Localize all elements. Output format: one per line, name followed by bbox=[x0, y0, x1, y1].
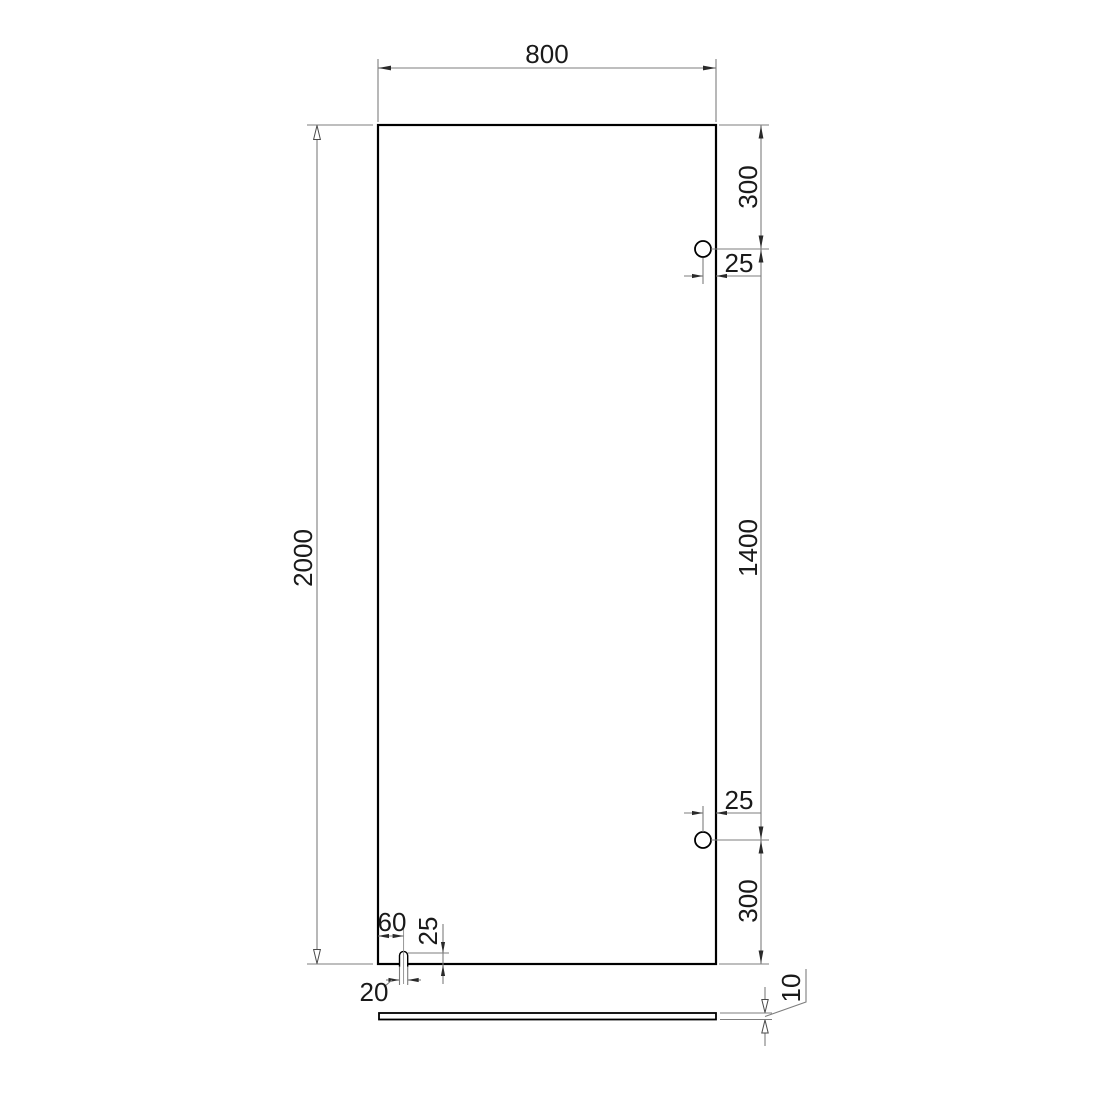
dim-label-60: 60 bbox=[378, 907, 407, 937]
arrow-up-icon bbox=[441, 965, 445, 976]
dim-label-1400: 1400 bbox=[733, 519, 763, 577]
arrow-right-icon bbox=[692, 811, 703, 815]
dim-label-25-slot: 25 bbox=[413, 917, 443, 946]
dim-label-2000: 2000 bbox=[288, 529, 318, 587]
arrow-down-icon bbox=[759, 827, 764, 840]
dim-label-300-top: 300 bbox=[733, 165, 763, 208]
arrow-left-icon bbox=[408, 978, 419, 982]
arrow-down-icon bbox=[762, 1000, 768, 1013]
arrow-right-icon bbox=[703, 66, 716, 71]
arrow-down-icon bbox=[759, 951, 764, 964]
arrow-left-icon bbox=[378, 66, 391, 71]
dim-hole-bottom-25: 25 bbox=[684, 785, 761, 832]
hole-top bbox=[695, 241, 711, 257]
arrow-up-icon bbox=[762, 1020, 768, 1033]
glass-panel-drawing: 800 2000 300 1400 300 25 bbox=[0, 0, 1100, 1100]
dim-label-25-top: 25 bbox=[725, 248, 754, 278]
arrow-up-icon bbox=[314, 126, 321, 140]
dim-label-800: 800 bbox=[525, 39, 568, 69]
dim-label-20: 20 bbox=[360, 977, 389, 1007]
arrow-down-icon bbox=[314, 950, 321, 964]
technical-drawing-canvas: 800 2000 300 1400 300 25 bbox=[0, 0, 1100, 1100]
arrow-up-icon bbox=[759, 841, 764, 854]
dim-width-800: 800 bbox=[378, 39, 716, 122]
dim-height-2000: 2000 bbox=[288, 125, 373, 964]
dim-label-300-bottom: 300 bbox=[733, 879, 763, 922]
front-view bbox=[378, 125, 716, 967]
panel-outline bbox=[378, 125, 716, 964]
hole-bottom bbox=[695, 832, 711, 848]
arrow-up-icon bbox=[759, 250, 764, 263]
arrow-down-icon bbox=[759, 236, 764, 249]
dim-label-25-bottom: 25 bbox=[725, 785, 754, 815]
dim-label-10: 10 bbox=[776, 974, 806, 1003]
side-view-bar bbox=[379, 1013, 716, 1020]
arrow-right-icon bbox=[692, 274, 703, 278]
arrow-up-icon bbox=[759, 126, 764, 139]
